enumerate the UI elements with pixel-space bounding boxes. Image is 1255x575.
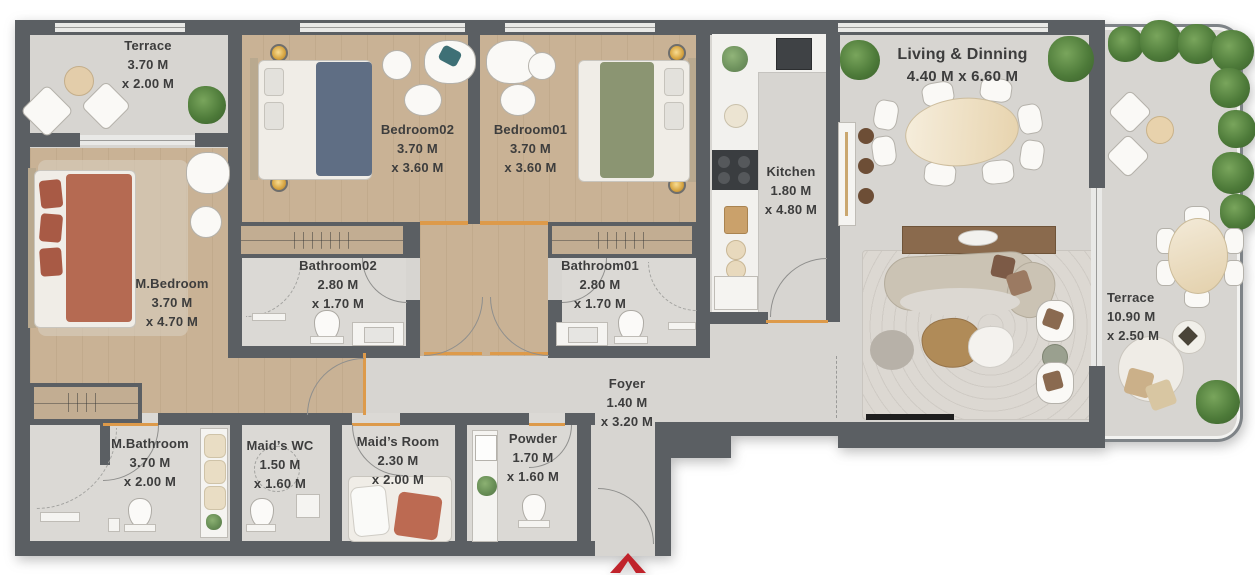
bed-headboard — [250, 58, 258, 180]
room-name: Powder — [473, 429, 593, 448]
wall — [1089, 20, 1105, 188]
wardrobe — [548, 222, 696, 258]
pillow — [39, 179, 64, 209]
room-name: Bathroom01 — [520, 256, 680, 275]
room-dim: x 2.00 M — [70, 472, 230, 491]
room-name: Bedroom01 — [453, 120, 608, 139]
pillow — [393, 491, 443, 541]
room-dim: x 4.80 M — [726, 200, 856, 219]
room-name: Terrace — [68, 36, 228, 55]
bed-blanket — [600, 62, 654, 178]
toilet-tank — [310, 336, 344, 344]
entry-arrow — [610, 553, 646, 573]
room-dim: 1.40 M — [562, 393, 692, 412]
terrace-table — [1146, 116, 1174, 144]
pouf — [382, 50, 412, 80]
pouf — [528, 52, 556, 80]
shower-fixture — [668, 322, 696, 330]
pouf — [190, 206, 222, 238]
plant — [1220, 194, 1255, 230]
wardrobe — [237, 222, 407, 258]
room-dim: 3.70 M — [70, 453, 230, 472]
wall — [655, 422, 1105, 436]
room-dim: x 1.60 M — [215, 474, 345, 493]
room-label-m-bathroom: M.Bathroom 3.70 M x 2.00 M — [70, 434, 230, 491]
wall — [696, 312, 768, 324]
wall — [195, 133, 237, 147]
room-dim: 10.90 M — [1107, 307, 1197, 326]
room-label-terrace-left: Terrace 3.70 M x 2.00 M — [68, 36, 228, 93]
plant — [1212, 152, 1254, 194]
room-dim: 2.30 M — [330, 451, 466, 470]
plant — [1210, 68, 1250, 108]
wall — [548, 346, 710, 358]
plant — [1140, 20, 1182, 62]
room-label-terrace-right: Terrace 10.90 M x 2.50 M — [1107, 288, 1197, 345]
room-label-bedroom01: Bedroom01 3.70 M x 3.60 M — [453, 120, 608, 177]
refrigerator — [714, 276, 758, 310]
room-dim: x 2.00 M — [330, 470, 466, 489]
plant — [1212, 30, 1254, 72]
open-boundary-line — [836, 356, 837, 418]
tv — [866, 414, 954, 420]
wall — [696, 20, 710, 350]
wall — [1089, 366, 1105, 436]
door-threshold — [480, 221, 548, 225]
room-label-bathroom02: Bathroom02 2.80 M x 1.70 M — [258, 256, 418, 313]
room-name: Maid’s Room — [330, 432, 466, 451]
room-dim: x 2.50 M — [1107, 326, 1197, 345]
bar-stool — [858, 158, 874, 174]
pillow — [264, 68, 284, 96]
room-label-kitchen: Kitchen 1.80 M x 4.80 M — [726, 162, 856, 219]
pillow — [664, 102, 684, 130]
room-name: Maid’s WC — [215, 436, 345, 455]
room-dim: x 1.70 M — [520, 294, 680, 313]
room-dim: 1.70 M — [473, 448, 593, 467]
plant — [1218, 110, 1255, 148]
window — [55, 23, 185, 32]
room-dim: x 1.60 M — [473, 467, 593, 486]
pillow — [39, 213, 63, 243]
room-dim: 1.80 M — [726, 181, 856, 200]
kitchen-decor — [724, 104, 748, 128]
wall — [15, 541, 595, 556]
room-dim: 3.70 M — [453, 139, 608, 158]
room-dim: 2.80 M — [258, 275, 418, 294]
door-threshold — [420, 221, 468, 225]
pouf — [404, 84, 442, 116]
pouf — [500, 84, 536, 116]
room-dim: x 4.70 M — [92, 312, 252, 331]
room-label-maids-room: Maid’s Room 2.30 M x 2.00 M — [330, 432, 466, 489]
pouf — [870, 330, 914, 370]
room-name: Terrace — [1107, 288, 1197, 307]
window — [505, 23, 655, 32]
room-name: Foyer — [562, 374, 692, 393]
sink-basin — [568, 327, 598, 343]
shower-fixture — [40, 512, 80, 522]
bar-stool — [858, 188, 874, 204]
room-dim: 4.40 M x 6.60 M — [845, 66, 1080, 88]
window — [300, 23, 465, 32]
floor-plan: Terrace 3.70 M x 2.00 M Bedroom02 3.70 M… — [0, 0, 1255, 575]
room-name: Bathroom02 — [258, 256, 418, 275]
room-label-m-bedroom: M.Bedroom 3.70 M x 4.70 M — [92, 274, 252, 331]
room-dim: x 3.60 M — [453, 158, 608, 177]
wall — [228, 346, 420, 358]
toilet-tank — [614, 336, 648, 344]
window — [838, 23, 1048, 32]
room-label-living-dining: Living & Dinning 4.40 M x 6.60 M — [845, 44, 1080, 88]
wall — [671, 436, 731, 458]
room-name: M.Bathroom — [70, 434, 230, 453]
sliding-door — [1091, 188, 1102, 366]
toilet-tank — [518, 520, 550, 528]
sofa-curve — [900, 288, 1020, 316]
room-dim: x 1.70 M — [258, 294, 418, 313]
floor-plan-canvas: Terrace 3.70 M x 2.00 M Bedroom02 3.70 M… — [0, 0, 1255, 575]
room-label-maids-wc: Maid’s WC 1.50 M x 1.60 M — [215, 436, 345, 493]
door-threshold — [766, 320, 828, 323]
wall — [406, 222, 420, 258]
plate — [726, 240, 746, 260]
room-label-powder: Powder 1.70 M x 1.60 M — [473, 429, 593, 486]
pillow — [264, 102, 284, 130]
terrace-dining-table — [1168, 218, 1228, 294]
wall — [838, 436, 1105, 448]
room-dim: 3.70 M — [68, 55, 228, 74]
room-label-bathroom01: Bathroom01 2.80 M x 1.70 M — [520, 256, 680, 313]
plant — [206, 514, 222, 530]
kitchen-sink — [776, 38, 812, 70]
dining-chair — [870, 134, 898, 167]
bathroom-fixture — [108, 518, 120, 532]
pillow — [39, 247, 63, 276]
room-name: M.Bedroom — [92, 274, 252, 293]
wall — [655, 422, 671, 556]
room-dim: x 2.00 M — [68, 74, 228, 93]
room-name: Kitchen — [726, 162, 856, 181]
toilet-tank — [124, 524, 156, 532]
plant — [722, 46, 748, 72]
armchair — [186, 152, 230, 194]
room-label-foyer: Foyer 1.40 M x 3.20 M — [562, 374, 692, 431]
sink-basin — [364, 327, 394, 343]
sliding-door — [80, 135, 195, 145]
plant — [1196, 380, 1240, 424]
toilet-tank — [246, 524, 276, 532]
room-dim: 1.50 M — [215, 455, 345, 474]
closet — [30, 383, 142, 423]
sink — [296, 494, 320, 518]
pillow — [664, 68, 684, 96]
shower-fixture — [252, 313, 286, 321]
pillow — [349, 484, 390, 537]
room-dim: 2.80 M — [520, 275, 680, 294]
plant — [1108, 26, 1144, 62]
room-dim: 3.70 M — [92, 293, 252, 312]
room-name: Living & Dinning — [845, 44, 1080, 66]
